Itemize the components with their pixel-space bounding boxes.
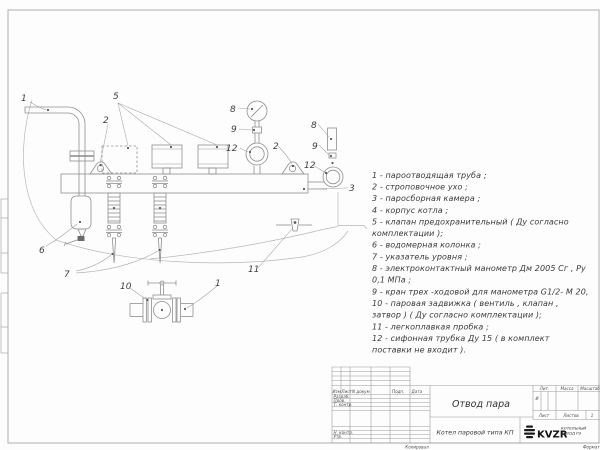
callout-fusible-plug: 11 (248, 265, 259, 275)
pressure-gauge-assembly (246, 101, 268, 174)
callout-siphon-right: 12 (304, 161, 316, 171)
revision-grid (332, 367, 410, 386)
lifting-lug-left (90, 162, 112, 174)
safety-valve-dashed (102, 146, 137, 173)
lifting-lug-right (282, 162, 304, 174)
parts-list-line: 9 - кран трех -ходовой для манометра G1/… (372, 287, 589, 296)
drawing-sheet: 1 5 2 8 9 12 2 8 9 12 3 6 7 10 1 11 1 - … (0, 0, 600, 450)
lit-value: И (535, 396, 538, 401)
boiler-shell-outline-2 (150, 227, 338, 260)
sheets-label: Листов (562, 413, 579, 418)
sheets-value: 1 (591, 413, 594, 418)
drain-cock (78, 236, 85, 241)
document-title: Отвод пара (452, 399, 510, 410)
callout-pipe-bottom: 1 (215, 279, 221, 289)
col-ndokum: N докум (352, 389, 370, 394)
parts-list-line: 10 - паровая задвижка ( вентиль , клапан… (372, 299, 559, 308)
fusible-plug (276, 219, 312, 231)
callout-cock: 9 (231, 125, 237, 135)
footer-copy-label: Копировал (405, 445, 429, 450)
parts-list-line: 2 - строповочное ухо ; (372, 183, 468, 192)
boiler-shell-right-edge (338, 192, 367, 229)
lit-header: Лит. (539, 386, 549, 391)
callout-level-indicator: 7 (64, 270, 70, 280)
safety-valve-2 (198, 145, 228, 174)
left-margin-boxes (1, 199, 8, 353)
footer-format-label: Формат А4 (583, 445, 600, 450)
safety-valve-1 (152, 145, 182, 174)
col-podp: Подп. (392, 389, 404, 394)
callout-cock-right: 9 (312, 142, 318, 152)
callout-safety-valves: 5 (113, 92, 119, 102)
massa-header: Масса (560, 386, 574, 391)
parts-list-line: 5 - клапан предохранительный ( Ду соглас… (372, 217, 569, 226)
steam-drum (61, 174, 308, 193)
parts-list-line: 8 - электроконтактный манометр Дм 2005 С… (372, 264, 586, 273)
parts-list-line: комплектации ); (372, 229, 443, 238)
electrocontact-gauge-assembly (308, 128, 343, 189)
callout-drum: 3 (349, 184, 355, 194)
boiler-steam-outlet-drawing: 1 5 2 8 9 12 2 8 9 12 3 6 7 10 1 11 1 - … (0, 0, 600, 450)
parts-list-line: 3 - паросборная камера ; (372, 194, 480, 203)
parts-list-line: 4 - корпус котла ; (372, 206, 448, 215)
callout-lug-left: 2 (103, 116, 109, 126)
callout-pipe: 1 (21, 94, 27, 104)
leader-lines (30, 102, 348, 310)
parts-list-line: 0,1 МПа ; (372, 276, 411, 285)
masshtab-header: Масштаб (580, 386, 600, 391)
boiler-shell-outline (23, 100, 348, 263)
row-utv: Утв. (334, 434, 343, 439)
water-gauge-column (64, 196, 91, 246)
kvzr-logo-icon (524, 426, 535, 439)
company-line2: ЗАВОД РЭ (561, 431, 582, 436)
steam-gate-valve (130, 281, 193, 323)
siphon-tube-loop (246, 143, 268, 165)
parts-list-line: 11 - легкоплавкая пробка ; (372, 322, 489, 331)
parts-list-line: затвор ) ( Ду согласно комплектации ); (372, 311, 542, 320)
callout-gauge: 8 (230, 105, 236, 115)
level-indicator-1 (106, 176, 122, 263)
callout-lug-right: 2 (273, 142, 279, 152)
pipe-flange-upper (70, 151, 94, 156)
parts-list-line: 1 - пароотводящая труба ; (372, 171, 487, 180)
parts-list-line: 6 - водомерная колонка ; (372, 241, 481, 250)
parts-list: 1 - пароотводящая труба ; 2 - строповочн… (372, 171, 589, 355)
document-subtitle: Котел паровой типа КП (437, 430, 514, 437)
callout-ec-manometer: 8 (311, 121, 317, 131)
parts-list-line: 7 - указатель уровня ; (372, 252, 468, 261)
parts-list-line: 12 - сифонная трубка Ду 15 ( в комплект (372, 334, 550, 343)
title-block: Изм Лист N докум Подп. Дата Разраб. Пров… (332, 367, 600, 450)
parts-list-line: поставки не входит ). (372, 346, 466, 355)
callout-water-column: 6 (39, 246, 45, 256)
callout-gate-valve: 10 (120, 282, 132, 292)
col-data: Дата (411, 389, 423, 394)
boiler-assembly-view: 1 5 2 8 9 12 2 8 9 12 3 6 7 10 1 11 (21, 92, 367, 322)
gauge-needle (251, 105, 263, 117)
pipe-flange-lower (70, 157, 94, 162)
callout-siphon: 12 (226, 144, 238, 154)
row-tkontr: Т. контр. (334, 402, 353, 407)
sheet-label: Лист (538, 413, 550, 418)
steam-pipe (25, 107, 94, 196)
